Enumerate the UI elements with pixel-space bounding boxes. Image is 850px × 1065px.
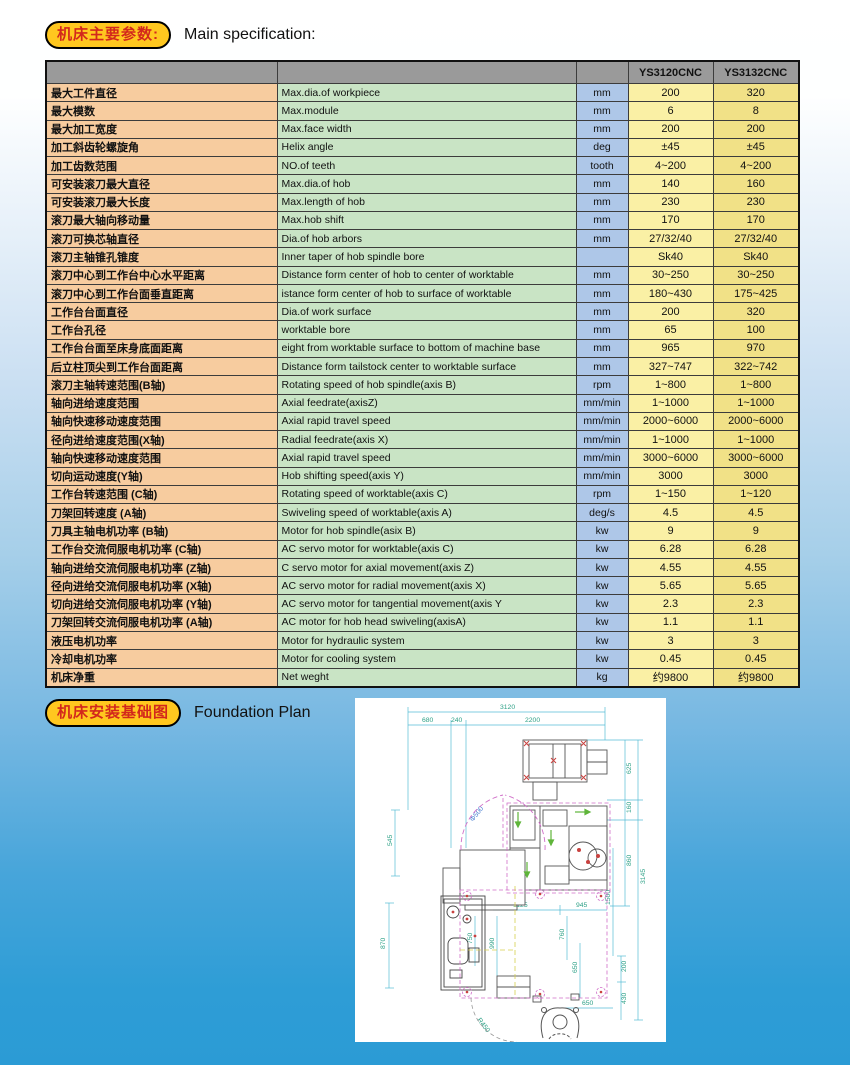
param-value-ys3120cnc: 965: [628, 339, 713, 357]
dim-inner-v4: 650: [572, 961, 579, 973]
spec-table-row: 滚刀主轴锥孔锥度 Inner taper of hob spindle bore…: [46, 248, 799, 266]
param-unit: rpm: [576, 485, 628, 503]
param-name-english: Inner taper of hob spindle bore: [277, 248, 576, 266]
param-value-ys3132cnc: 230: [713, 193, 799, 211]
param-unit: kw: [576, 595, 628, 613]
param-value-ys3132cnc: 3000: [713, 467, 799, 485]
param-value-ys3120cnc: 4~200: [628, 157, 713, 175]
spec-table-row: 滚刀最大轴向移动量 Max.hob shift mm 170 170: [46, 211, 799, 229]
param-value-ys3120cnc: 约9800: [628, 668, 713, 687]
param-name-chinese: 轴向进给交流伺服电机功率 (Z轴): [46, 558, 277, 576]
param-value-ys3120cnc: 3000: [628, 467, 713, 485]
param-name-chinese: 刀具主轴电机功率 (B轴): [46, 522, 277, 540]
param-value-ys3132cnc: 27/32/40: [713, 230, 799, 248]
param-name-english: Max.dia.of workpiece: [277, 84, 576, 102]
param-unit: kw: [576, 577, 628, 595]
param-value-ys3120cnc: 200: [628, 84, 713, 102]
param-name-chinese: 轴向快速移动速度范围: [46, 449, 277, 467]
param-value-ys3120cnc: 3: [628, 631, 713, 649]
dim-right-f: 430: [621, 992, 628, 1004]
spec-table-row: 机床净重 Net weght kg 约9800 约9800: [46, 668, 799, 687]
param-value-ys3132cnc: 3000~6000: [713, 449, 799, 467]
spec-table: YS3120CNC YS3132CNC 最大工件直径 Max.dia.of wo…: [45, 60, 800, 688]
param-name-chinese: 最大模数: [46, 102, 277, 120]
dim-right-total: 3145: [640, 869, 647, 884]
dim-inner-w2: 945: [576, 902, 588, 909]
spec-table-row: 最大加工宽度 Max.face width mm 200 200: [46, 120, 799, 138]
param-value-ys3132cnc: 4.5: [713, 504, 799, 522]
param-unit: mm: [576, 230, 628, 248]
param-unit: mm: [576, 211, 628, 229]
param-unit: [576, 248, 628, 266]
param-name-chinese: 滚刀主轴锥孔锥度: [46, 248, 277, 266]
spec-table-row: 工作台交流伺服电机功率 (C轴) AC servo motor for work…: [46, 540, 799, 558]
param-value-ys3120cnc: 5.65: [628, 577, 713, 595]
param-name-english: C servo motor for axial movement(axis Z): [277, 558, 576, 576]
column-header-model-2: YS3132CNC: [713, 61, 799, 84]
param-value-ys3132cnc: 322~742: [713, 357, 799, 375]
param-name-chinese: 工作台台面直径: [46, 303, 277, 321]
param-name-chinese: 冷却电机功率: [46, 650, 277, 668]
dim-left-a: 545: [387, 834, 394, 846]
param-name-english: AC servo motor for worktable(axis C): [277, 540, 576, 558]
param-name-chinese: 轴向快速移动速度范围: [46, 412, 277, 430]
foundation-section-header: 机床安装基础图 Foundation Plan: [45, 699, 311, 727]
param-unit: mm: [576, 284, 628, 302]
param-value-ys3132cnc: 175~425: [713, 284, 799, 302]
dim-seg-a: 680: [422, 717, 434, 724]
param-value-ys3132cnc: 1~800: [713, 376, 799, 394]
param-unit: kw: [576, 540, 628, 558]
param-name-english: AC servo motor for tangential movement(a…: [277, 595, 576, 613]
spec-table-row: 工作台台面至床身底面距离 eight from worktable surfac…: [46, 339, 799, 357]
param-value-ys3132cnc: 5.65: [713, 577, 799, 595]
param-unit: mm: [576, 266, 628, 284]
main-spec-title: Main specification:: [184, 26, 316, 44]
param-unit: mm/min: [576, 412, 628, 430]
param-unit: kw: [576, 613, 628, 631]
spec-table-row: 滚刀中心到工作台面垂直距离 istance form center of hob…: [46, 284, 799, 302]
param-unit: mm: [576, 339, 628, 357]
param-name-english: Axial rapid travel speed: [277, 449, 576, 467]
spec-table-row: 滚刀中心到工作台中心水平距离 Distance form center of h…: [46, 266, 799, 284]
param-name-chinese: 后立柱顶尖到工作台面距离: [46, 357, 277, 375]
param-value-ys3120cnc: 2000~6000: [628, 412, 713, 430]
param-name-chinese: 最大加工宽度: [46, 120, 277, 138]
spec-table-row: 切向进给交流伺服电机功率 (Y轴) AC servo motor for tan…: [46, 595, 799, 613]
param-unit: mm: [576, 303, 628, 321]
spec-table-row: 可安装滚刀最大长度 Max.length of hob mm 230 230: [46, 193, 799, 211]
param-name-english: istance form center of hob to surface of…: [277, 284, 576, 302]
param-value-ys3132cnc: 170: [713, 211, 799, 229]
param-unit: deg/s: [576, 504, 628, 522]
param-value-ys3120cnc: 230: [628, 193, 713, 211]
main-spec-section-header: 机床主要参数: Main specification:: [45, 21, 316, 49]
param-value-ys3120cnc: 3000~6000: [628, 449, 713, 467]
param-value-ys3120cnc: 27/32/40: [628, 230, 713, 248]
dim-right-d: 1500: [605, 890, 612, 905]
param-value-ys3120cnc: 200: [628, 120, 713, 138]
param-name-chinese: 工作台交流伺服电机功率 (C轴): [46, 540, 277, 558]
param-value-ys3120cnc: 2.3: [628, 595, 713, 613]
param-value-ys3120cnc: 6.28: [628, 540, 713, 558]
bolt-markers: [524, 741, 600, 864]
param-value-ys3132cnc: 0.45: [713, 650, 799, 668]
param-name-english: NO.of teeth: [277, 157, 576, 175]
dim-seg-c: 2200: [525, 717, 540, 724]
param-name-english: Motor for hob spindle(asix B): [277, 522, 576, 540]
param-unit: mm/min: [576, 394, 628, 412]
foundation-badge: 机床安装基础图: [45, 699, 181, 727]
param-name-english: Motor for hydraulic system: [277, 631, 576, 649]
param-name-english: Rotating speed of worktable(axis C): [277, 485, 576, 503]
param-name-english: Hob shifting speed(axis Y): [277, 467, 576, 485]
param-value-ys3132cnc: 100: [713, 321, 799, 339]
dim-right-e: 200: [621, 960, 628, 972]
param-value-ys3120cnc: 1~800: [628, 376, 713, 394]
param-value-ys3120cnc: 1~1000: [628, 394, 713, 412]
param-unit: mm: [576, 102, 628, 120]
param-name-english: Radial feedrate(axis X): [277, 431, 576, 449]
param-name-chinese: 滚刀中心到工作台中心水平距离: [46, 266, 277, 284]
param-name-chinese: 刀架回转交流伺服电机功率 (A轴): [46, 613, 277, 631]
spec-table-row: 最大模数 Max.module mm 6 8: [46, 102, 799, 120]
param-name-english: Axial rapid travel speed: [277, 412, 576, 430]
param-unit: kw: [576, 631, 628, 649]
param-value-ys3132cnc: 6.28: [713, 540, 799, 558]
param-value-ys3120cnc: 200: [628, 303, 713, 321]
param-value-ys3132cnc: 320: [713, 303, 799, 321]
spec-table-row: 液压电机功率 Motor for hydraulic system kw 3 3: [46, 631, 799, 649]
param-name-english: Rotating speed of hob spindle(axis B): [277, 376, 576, 394]
param-name-chinese: 切向运动速度(Y轴): [46, 467, 277, 485]
param-unit: kw: [576, 650, 628, 668]
spec-table-row: 切向运动速度(Y轴) Hob shifting speed(axis Y) mm…: [46, 467, 799, 485]
spec-table-row: 加工齿数范围 NO.of teeth tooth 4~200 4~200: [46, 157, 799, 175]
param-name-chinese: 滚刀最大轴向移动量: [46, 211, 277, 229]
foundation-plan-drawing: 3120 680 240 2200 625 160 860 3145 545 8…: [355, 698, 666, 1042]
param-name-chinese: 滚刀中心到工作台面垂直距离: [46, 284, 277, 302]
param-value-ys3132cnc: 4.55: [713, 558, 799, 576]
foundation-title: Foundation Plan: [194, 704, 311, 722]
param-unit: mm: [576, 357, 628, 375]
param-value-ys3120cnc: 1~150: [628, 485, 713, 503]
header-cell-en-blank: [277, 61, 576, 84]
dim-front-w: 650: [582, 1000, 594, 1007]
spec-table-row: 可安装滚刀最大直径 Max.dia.of hob mm 140 160: [46, 175, 799, 193]
param-name-chinese: 加工齿数范围: [46, 157, 277, 175]
param-value-ys3120cnc: 1~1000: [628, 431, 713, 449]
spec-table-row: 滚刀可换芯轴直径 Dia.of hob arbors mm 27/32/40 2…: [46, 230, 799, 248]
param-value-ys3132cnc: 160: [713, 175, 799, 193]
spec-table-body: 最大工件直径 Max.dia.of workpiece mm 200 320 最…: [46, 84, 799, 688]
param-name-chinese: 机床净重: [46, 668, 277, 687]
param-unit: kw: [576, 522, 628, 540]
header-cell-cn-blank: [46, 61, 277, 84]
param-name-english: Motor for cooling system: [277, 650, 576, 668]
dim-door-diameter: Φ500: [469, 805, 485, 823]
param-value-ys3132cnc: 1.1: [713, 613, 799, 631]
param-name-english: Max.length of hob: [277, 193, 576, 211]
param-value-ys3120cnc: 180~430: [628, 284, 713, 302]
param-name-english: Helix angle: [277, 138, 576, 156]
param-value-ys3120cnc: 4.55: [628, 558, 713, 576]
spec-table-row: 后立柱顶尖到工作台面距离 Distance form tailstock cen…: [46, 357, 799, 375]
spec-table-row: 刀具主轴电机功率 (B轴) Motor for hob spindle(asix…: [46, 522, 799, 540]
param-name-english: Swiveling speed of worktable(axis A): [277, 504, 576, 522]
param-unit: kg: [576, 668, 628, 687]
param-name-chinese: 刀架回转速度 (A轴): [46, 504, 277, 522]
param-value-ys3132cnc: 1~120: [713, 485, 799, 503]
spec-table-row: 径向进给交流伺服电机功率 (X轴) AC servo motor for rad…: [46, 577, 799, 595]
spec-table-row: 刀架回转速度 (A轴) Swiveling speed of worktable…: [46, 504, 799, 522]
param-name-chinese: 切向进给交流伺服电机功率 (Y轴): [46, 595, 277, 613]
param-name-chinese: 工作台孔径: [46, 321, 277, 339]
dim-inner-v3: 760: [559, 928, 566, 940]
param-unit: deg: [576, 138, 628, 156]
param-unit: tooth: [576, 157, 628, 175]
spec-table-row: 工作台转速范围 (C轴) Rotating speed of worktable…: [46, 485, 799, 503]
param-name-english: Dia.of work surface: [277, 303, 576, 321]
param-name-chinese: 液压电机功率: [46, 631, 277, 649]
param-name-english: AC servo motor for radial movement(axis …: [277, 577, 576, 595]
flow-arrows: [516, 810, 591, 878]
param-value-ys3132cnc: 2000~6000: [713, 412, 799, 430]
param-name-chinese: 轴向进给速度范围: [46, 394, 277, 412]
dim-total-width: 3120: [500, 704, 515, 711]
spec-table-row: 轴向快速移动速度范围 Axial rapid travel speed mm/m…: [46, 449, 799, 467]
param-value-ys3132cnc: 3: [713, 631, 799, 649]
param-name-english: Max.dia.of hob: [277, 175, 576, 193]
param-value-ys3120cnc: 6: [628, 102, 713, 120]
param-name-english: worktable bore: [277, 321, 576, 339]
operator-figure: [541, 1008, 579, 1040]
param-name-chinese: 最大工件直径: [46, 84, 277, 102]
param-unit: mm/min: [576, 467, 628, 485]
spec-table-row: 轴向快速移动速度范围 Axial rapid travel speed mm/m…: [46, 412, 799, 430]
param-value-ys3120cnc: 9: [628, 522, 713, 540]
spec-table-row: 径向进给速度范围(X轴) Radial feedrate(axis X) mm/…: [46, 431, 799, 449]
param-name-english: eight from worktable surface to bottom o…: [277, 339, 576, 357]
param-value-ys3132cnc: 200: [713, 120, 799, 138]
param-name-chinese: 径向进给交流伺服电机功率 (X轴): [46, 577, 277, 595]
param-name-english: Axial feedrate(axisZ): [277, 394, 576, 412]
spec-table-row: 加工斜齿轮螺旋角 Helix angle deg ±45 ±45: [46, 138, 799, 156]
param-name-english: Distance form tailstock center to workta…: [277, 357, 576, 375]
param-name-chinese: 可安装滚刀最大直径: [46, 175, 277, 193]
dim-right-a: 625: [626, 762, 633, 774]
param-unit: kw: [576, 558, 628, 576]
param-unit: rpm: [576, 376, 628, 394]
param-value-ys3120cnc: 170: [628, 211, 713, 229]
spec-sheet-page: 机床主要参数: Main specification: YS3120CNC YS…: [0, 0, 850, 1065]
dim-left-b: 870: [380, 937, 387, 949]
column-header-model-1: YS3120CNC: [628, 61, 713, 84]
spec-table-row: 滚刀主轴转速范围(B轴) Rotating speed of hob spind…: [46, 376, 799, 394]
dim-right-c: 860: [626, 854, 633, 866]
spec-table-row: 工作台孔径 worktable bore mm 65 100: [46, 321, 799, 339]
param-name-chinese: 滚刀可换芯轴直径: [46, 230, 277, 248]
param-name-english: AC motor for hob head swiveling(axisA): [277, 613, 576, 631]
param-value-ys3132cnc: 1~1000: [713, 394, 799, 412]
param-name-chinese: 径向进给速度范围(X轴): [46, 431, 277, 449]
param-value-ys3132cnc: 2.3: [713, 595, 799, 613]
param-unit: mm: [576, 84, 628, 102]
param-value-ys3120cnc: 327~747: [628, 357, 713, 375]
param-value-ys3132cnc: 约9800: [713, 668, 799, 687]
spec-table-row: 最大工件直径 Max.dia.of workpiece mm 200 320: [46, 84, 799, 102]
param-value-ys3132cnc: 8: [713, 102, 799, 120]
param-value-ys3120cnc: 1.1: [628, 613, 713, 631]
param-name-chinese: 工作台台面至床身底面距离: [46, 339, 277, 357]
dim-seg-b: 240: [451, 717, 463, 724]
main-spec-badge: 机床主要参数:: [45, 21, 171, 49]
param-value-ys3132cnc: 320: [713, 84, 799, 102]
spec-table-row: 刀架回转交流伺服电机功率 (A轴) AC motor for hob head …: [46, 613, 799, 631]
param-value-ys3120cnc: Sk40: [628, 248, 713, 266]
param-name-english: Distance form center of hob to center of…: [277, 266, 576, 284]
foundation-plan-svg: 3120 680 240 2200 625 160 860 3145 545 8…: [355, 698, 666, 1042]
param-value-ys3132cnc: 1~1000: [713, 431, 799, 449]
param-name-chinese: 可安装滚刀最大长度: [46, 193, 277, 211]
param-name-chinese: 滚刀主轴转速范围(B轴): [46, 376, 277, 394]
param-value-ys3132cnc: 970: [713, 339, 799, 357]
param-name-english: Max.hob shift: [277, 211, 576, 229]
param-value-ys3120cnc: 65: [628, 321, 713, 339]
param-unit: mm: [576, 120, 628, 138]
param-unit: mm: [576, 175, 628, 193]
spec-table-row: 冷却电机功率 Motor for cooling system kw 0.45 …: [46, 650, 799, 668]
param-value-ys3132cnc: Sk40: [713, 248, 799, 266]
param-name-english: Max.module: [277, 102, 576, 120]
param-name-chinese: 工作台转速范围 (C轴): [46, 485, 277, 503]
param-value-ys3120cnc: 30~250: [628, 266, 713, 284]
spec-table-row: 工作台台面直径 Dia.of work surface mm 200 320: [46, 303, 799, 321]
spec-table-row: 轴向进给速度范围 Axial feedrate(axisZ) mm/min 1~…: [46, 394, 799, 412]
param-unit: mm: [576, 321, 628, 339]
header-cell-unit-blank: [576, 61, 628, 84]
param-unit: mm/min: [576, 449, 628, 467]
param-name-english: Dia.of hob arbors: [277, 230, 576, 248]
param-value-ys3132cnc: ±45: [713, 138, 799, 156]
spec-table-header-row: YS3120CNC YS3132CNC: [46, 61, 799, 84]
param-value-ys3120cnc: 0.45: [628, 650, 713, 668]
param-value-ys3120cnc: ±45: [628, 138, 713, 156]
param-value-ys3132cnc: 9: [713, 522, 799, 540]
param-value-ys3120cnc: 4.5: [628, 504, 713, 522]
param-unit: mm/min: [576, 431, 628, 449]
param-value-ys3120cnc: 140: [628, 175, 713, 193]
param-name-english: Net weght: [277, 668, 576, 687]
param-value-ys3132cnc: 4~200: [713, 157, 799, 175]
spec-table-row: 轴向进给交流伺服电机功率 (Z轴) C servo motor for axia…: [46, 558, 799, 576]
param-name-english: Max.face width: [277, 120, 576, 138]
dim-right-b: 160: [626, 801, 633, 813]
param-value-ys3132cnc: 30~250: [713, 266, 799, 284]
param-name-chinese: 加工斜齿轮螺旋角: [46, 138, 277, 156]
dim-inner-v2: 990: [489, 937, 496, 949]
param-unit: mm: [576, 193, 628, 211]
